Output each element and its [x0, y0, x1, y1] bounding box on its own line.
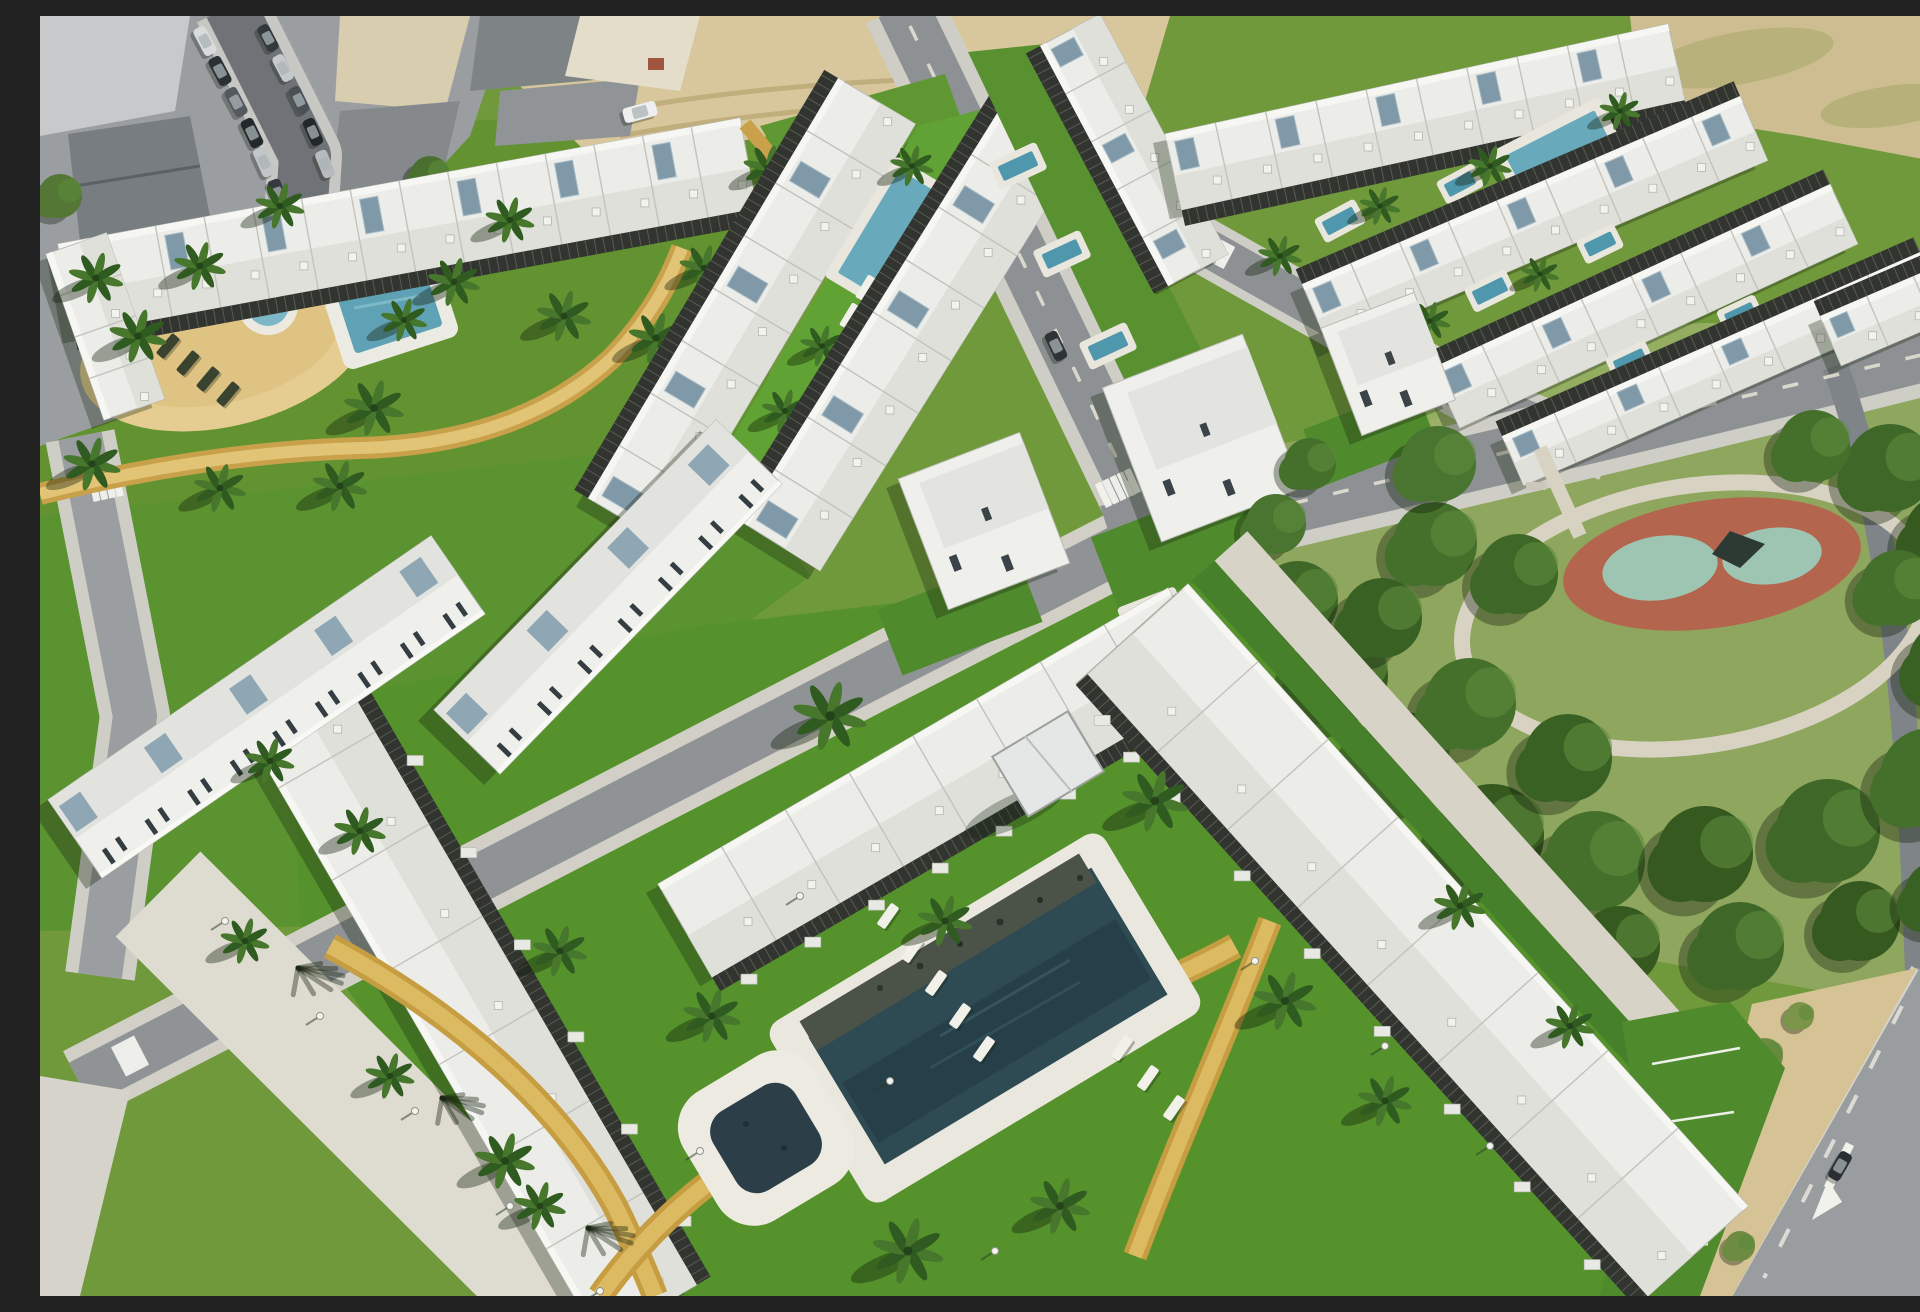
aerial-development-render [40, 16, 1920, 1296]
scene-canvas [40, 16, 1920, 1296]
